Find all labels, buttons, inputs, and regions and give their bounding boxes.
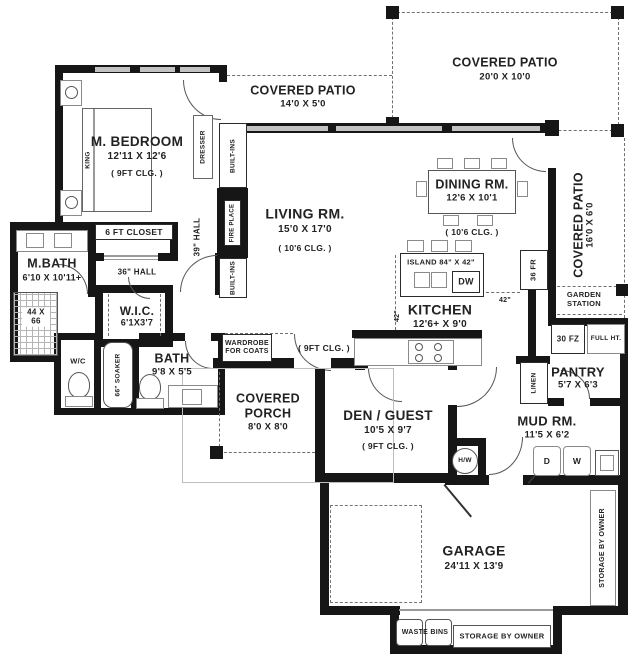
- patio-east-dims: 16'0 X 6'0: [586, 172, 597, 278]
- clearance-label: 42": [499, 297, 511, 305]
- patio-ne-edge-top: [392, 12, 618, 13]
- closet-label: 6 FT CLOSET: [105, 227, 163, 237]
- garden-station-line: [552, 286, 622, 287]
- window: [180, 67, 210, 72]
- dining-ceiling: ( 10'6 CLG. ): [445, 227, 498, 237]
- freezer-label: 30 FZ: [557, 334, 579, 343]
- garden-station-label: GARDEN STATION: [558, 291, 610, 309]
- patio-ne-edge-right: [618, 12, 619, 130]
- door-arc-bedroom: [183, 80, 221, 120]
- wall: [88, 253, 104, 261]
- sink: [54, 233, 72, 248]
- garden-station-line: [552, 314, 622, 315]
- bedroom-name: M. BEDROOM: [91, 134, 183, 150]
- bath-name: BATH: [155, 352, 190, 367]
- storage-label: STORAGE BY OWNER: [599, 508, 607, 588]
- bedroom-ceiling: ( 9FT CLG. ): [111, 168, 163, 178]
- chair: [464, 158, 480, 169]
- window: [452, 126, 540, 131]
- wic-dims: 6'1X3'7: [121, 318, 153, 329]
- wc-label: W/C: [70, 358, 85, 367]
- den-dims: 10'5 X 9'7: [364, 425, 412, 437]
- mbath-name: M.BATH: [27, 257, 76, 272]
- porch-edge: [219, 372, 220, 452]
- wic-rod: [160, 294, 161, 336]
- porch-name: COVERED PORCH: [229, 391, 307, 421]
- garage-name: GARAGE: [442, 543, 505, 560]
- dining-name: DINING RM.: [435, 178, 508, 193]
- nightstand-lamp: [65, 196, 78, 209]
- toilet-tank: [136, 398, 164, 409]
- island-sink: [414, 272, 430, 288]
- sink: [26, 233, 44, 248]
- patio-east-name: COVERED PATIO: [571, 172, 585, 278]
- door-arc-dining-patio: [512, 138, 546, 172]
- wall: [528, 290, 536, 358]
- entry-ceiling: ( 9FT CLG. ): [298, 343, 350, 353]
- bed-headboard: [93, 109, 95, 211]
- fridge-label: 36 FR: [530, 259, 539, 281]
- kitchen-dims: 12'6+ X 9'0: [413, 319, 467, 331]
- living-ceiling: ( 10'6 CLG. ): [278, 243, 331, 253]
- closet-slider: [104, 259, 158, 261]
- island-label: ISLAND 84" X 42": [407, 259, 475, 268]
- patio-ne-dims: 20'0 X 10'0: [479, 71, 530, 82]
- chair: [491, 158, 507, 169]
- mbath-dims: 6'10 X 10'11+: [23, 273, 82, 284]
- built-ins-label: BUILT-INS: [229, 261, 236, 295]
- window: [95, 67, 130, 72]
- island-sink: [431, 272, 447, 288]
- wall: [548, 398, 564, 406]
- shower-label: 44 X 66: [22, 308, 50, 327]
- wall: [320, 483, 329, 615]
- patio-post: [611, 6, 624, 19]
- living-name: LIVING RM.: [265, 206, 344, 223]
- bed-king-label: KING: [84, 151, 91, 168]
- clearance-label: 42": [394, 310, 402, 322]
- den-ceiling: ( 9FT CLG. ): [362, 441, 414, 451]
- patio-ne-edge-left: [392, 12, 393, 123]
- garage-dims: 24'11 X 13'9: [445, 561, 504, 573]
- wall: [618, 483, 628, 615]
- linen-label: LINEN: [530, 373, 537, 394]
- mud-dims: 11'5 X 6'2: [524, 429, 569, 440]
- dryer-label: D: [544, 456, 550, 466]
- patio-top-roof-edge: [222, 75, 392, 76]
- wall-post: [545, 120, 559, 136]
- chair: [517, 181, 528, 197]
- wall: [352, 330, 482, 338]
- dresser-label: DRESSER: [199, 130, 206, 164]
- den-name: DEN / GUEST: [343, 408, 433, 424]
- utility-sink-basin: [600, 455, 614, 471]
- burner: [434, 343, 442, 351]
- patio-post: [616, 284, 628, 296]
- kitchen-name: KITCHEN: [408, 302, 472, 319]
- door-arc-wic: [128, 277, 150, 299]
- fireplace-label: FIRE PLACE: [229, 204, 236, 243]
- dishwasher-label: DW: [458, 277, 474, 288]
- bath-dims: 9'8 X 5'5: [152, 366, 192, 377]
- hall36-label: 36" HALL: [118, 267, 157, 276]
- wall: [590, 398, 628, 406]
- wall: [548, 168, 556, 322]
- wardrobe-label: WARDROBE FOR COATS: [224, 340, 270, 357]
- porch-dims: 8'0 X 8'0: [248, 421, 288, 432]
- wall: [523, 475, 628, 485]
- dining-dims: 12'6 X 10'1: [446, 192, 497, 203]
- garage-dashed-area: [330, 505, 422, 603]
- toilet: [139, 374, 161, 400]
- water-heater-label: H/W: [458, 457, 472, 465]
- door-arc-hall: [180, 255, 217, 292]
- sink: [182, 389, 202, 405]
- toilet: [68, 372, 90, 398]
- stool: [407, 240, 424, 252]
- window: [240, 126, 328, 131]
- door-arc-garage: [489, 437, 523, 475]
- patio-post: [611, 124, 624, 137]
- floor-plan: COVERED PATIO 14'0 X 5'0 COVERED PATIO 2…: [0, 0, 636, 664]
- patio-top-name: COVERED PATIO: [250, 84, 356, 99]
- chair: [416, 181, 427, 197]
- pantry-dims: 5'7 X 6'3: [558, 379, 598, 390]
- wic-rod: [108, 294, 109, 336]
- wall: [553, 606, 628, 615]
- wall: [94, 340, 101, 412]
- wall: [95, 285, 103, 347]
- patio-east-label: COVERED PATIO 16'0 X 6'0: [571, 172, 596, 278]
- porch-edge: [219, 452, 315, 453]
- porch-post: [210, 446, 223, 459]
- nightstand-lamp: [65, 86, 78, 99]
- storage-label: STORAGE BY OWNER: [460, 633, 545, 642]
- wall: [320, 606, 400, 615]
- burner: [415, 354, 423, 362]
- burner: [434, 354, 442, 362]
- window: [140, 67, 175, 72]
- stool: [431, 240, 448, 252]
- wall: [158, 253, 178, 261]
- clearance-line: [486, 292, 520, 293]
- window: [336, 126, 442, 131]
- burner: [415, 343, 423, 351]
- chair: [477, 215, 493, 226]
- hall39-label: 39" HALL: [192, 218, 201, 257]
- washer-label: W: [573, 456, 581, 466]
- closet-slider: [104, 255, 158, 257]
- door-arc-mudroom: [457, 367, 497, 407]
- wall: [445, 475, 489, 485]
- patio-top-dims: 14'0 X 5'0: [280, 98, 326, 109]
- chair: [443, 215, 459, 226]
- built-ins-label: BUILT-INS: [229, 139, 236, 173]
- stool: [455, 240, 472, 252]
- mud-name: MUD RM.: [517, 413, 576, 428]
- service-door-leaf: [443, 484, 472, 517]
- living-dims: 15'0 X 17'0: [278, 224, 332, 236]
- patio-post: [386, 6, 399, 19]
- full-height-label: FULL HT.: [591, 335, 621, 343]
- chair: [437, 158, 453, 169]
- wic-name: W.I.C.: [120, 304, 154, 318]
- soaker-label: 66" SOAKER: [114, 354, 121, 397]
- patio-ne-name: COVERED PATIO: [452, 56, 558, 71]
- pantry-name: PANTRY: [551, 364, 605, 379]
- wall: [165, 285, 173, 347]
- waste-bins-label: WASTE BINS: [402, 629, 449, 637]
- bedroom-dims: 12'11 X 12'6: [108, 151, 167, 163]
- wall: [478, 438, 486, 478]
- toilet-tank: [65, 396, 93, 407]
- garage-door-header: [399, 609, 553, 611]
